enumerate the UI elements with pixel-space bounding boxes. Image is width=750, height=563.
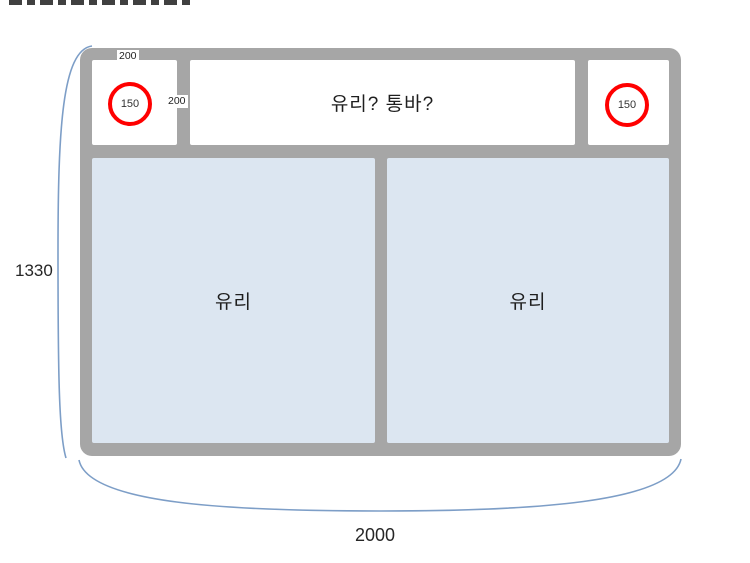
width-2000-arc xyxy=(79,459,681,511)
overall-width-label: 2000 xyxy=(0,525,750,546)
left-circle-badge: 150 xyxy=(108,82,152,126)
diagram-canvas: 150 유리? 통바? 150 유리 유리 200 200 1330 2000 xyxy=(0,0,750,563)
top-cell-width-label: 200 xyxy=(117,50,139,63)
right-circle-badge: 150 xyxy=(605,83,649,127)
right-glass-panel: 유리 xyxy=(387,158,669,443)
outer-frame: 150 유리? 통바? 150 유리 유리 xyxy=(80,48,681,456)
right-circle-label: 150 xyxy=(618,99,636,111)
top-middle-section: 유리? 통바? xyxy=(190,60,575,145)
right-glass-label: 유리 xyxy=(510,287,547,314)
overall-height-label: 1330 xyxy=(15,261,53,281)
top-middle-label: 유리? 통바? xyxy=(331,89,434,116)
clipped-text-artifact xyxy=(9,0,192,5)
left-glass-label: 유리 xyxy=(215,287,252,314)
top-right-cell: 150 xyxy=(588,60,669,145)
left-circle-label: 150 xyxy=(121,98,139,110)
top-left-cell: 150 xyxy=(92,60,177,145)
left-glass-panel: 유리 xyxy=(92,158,375,443)
top-cell-height-label: 200 xyxy=(166,95,188,108)
